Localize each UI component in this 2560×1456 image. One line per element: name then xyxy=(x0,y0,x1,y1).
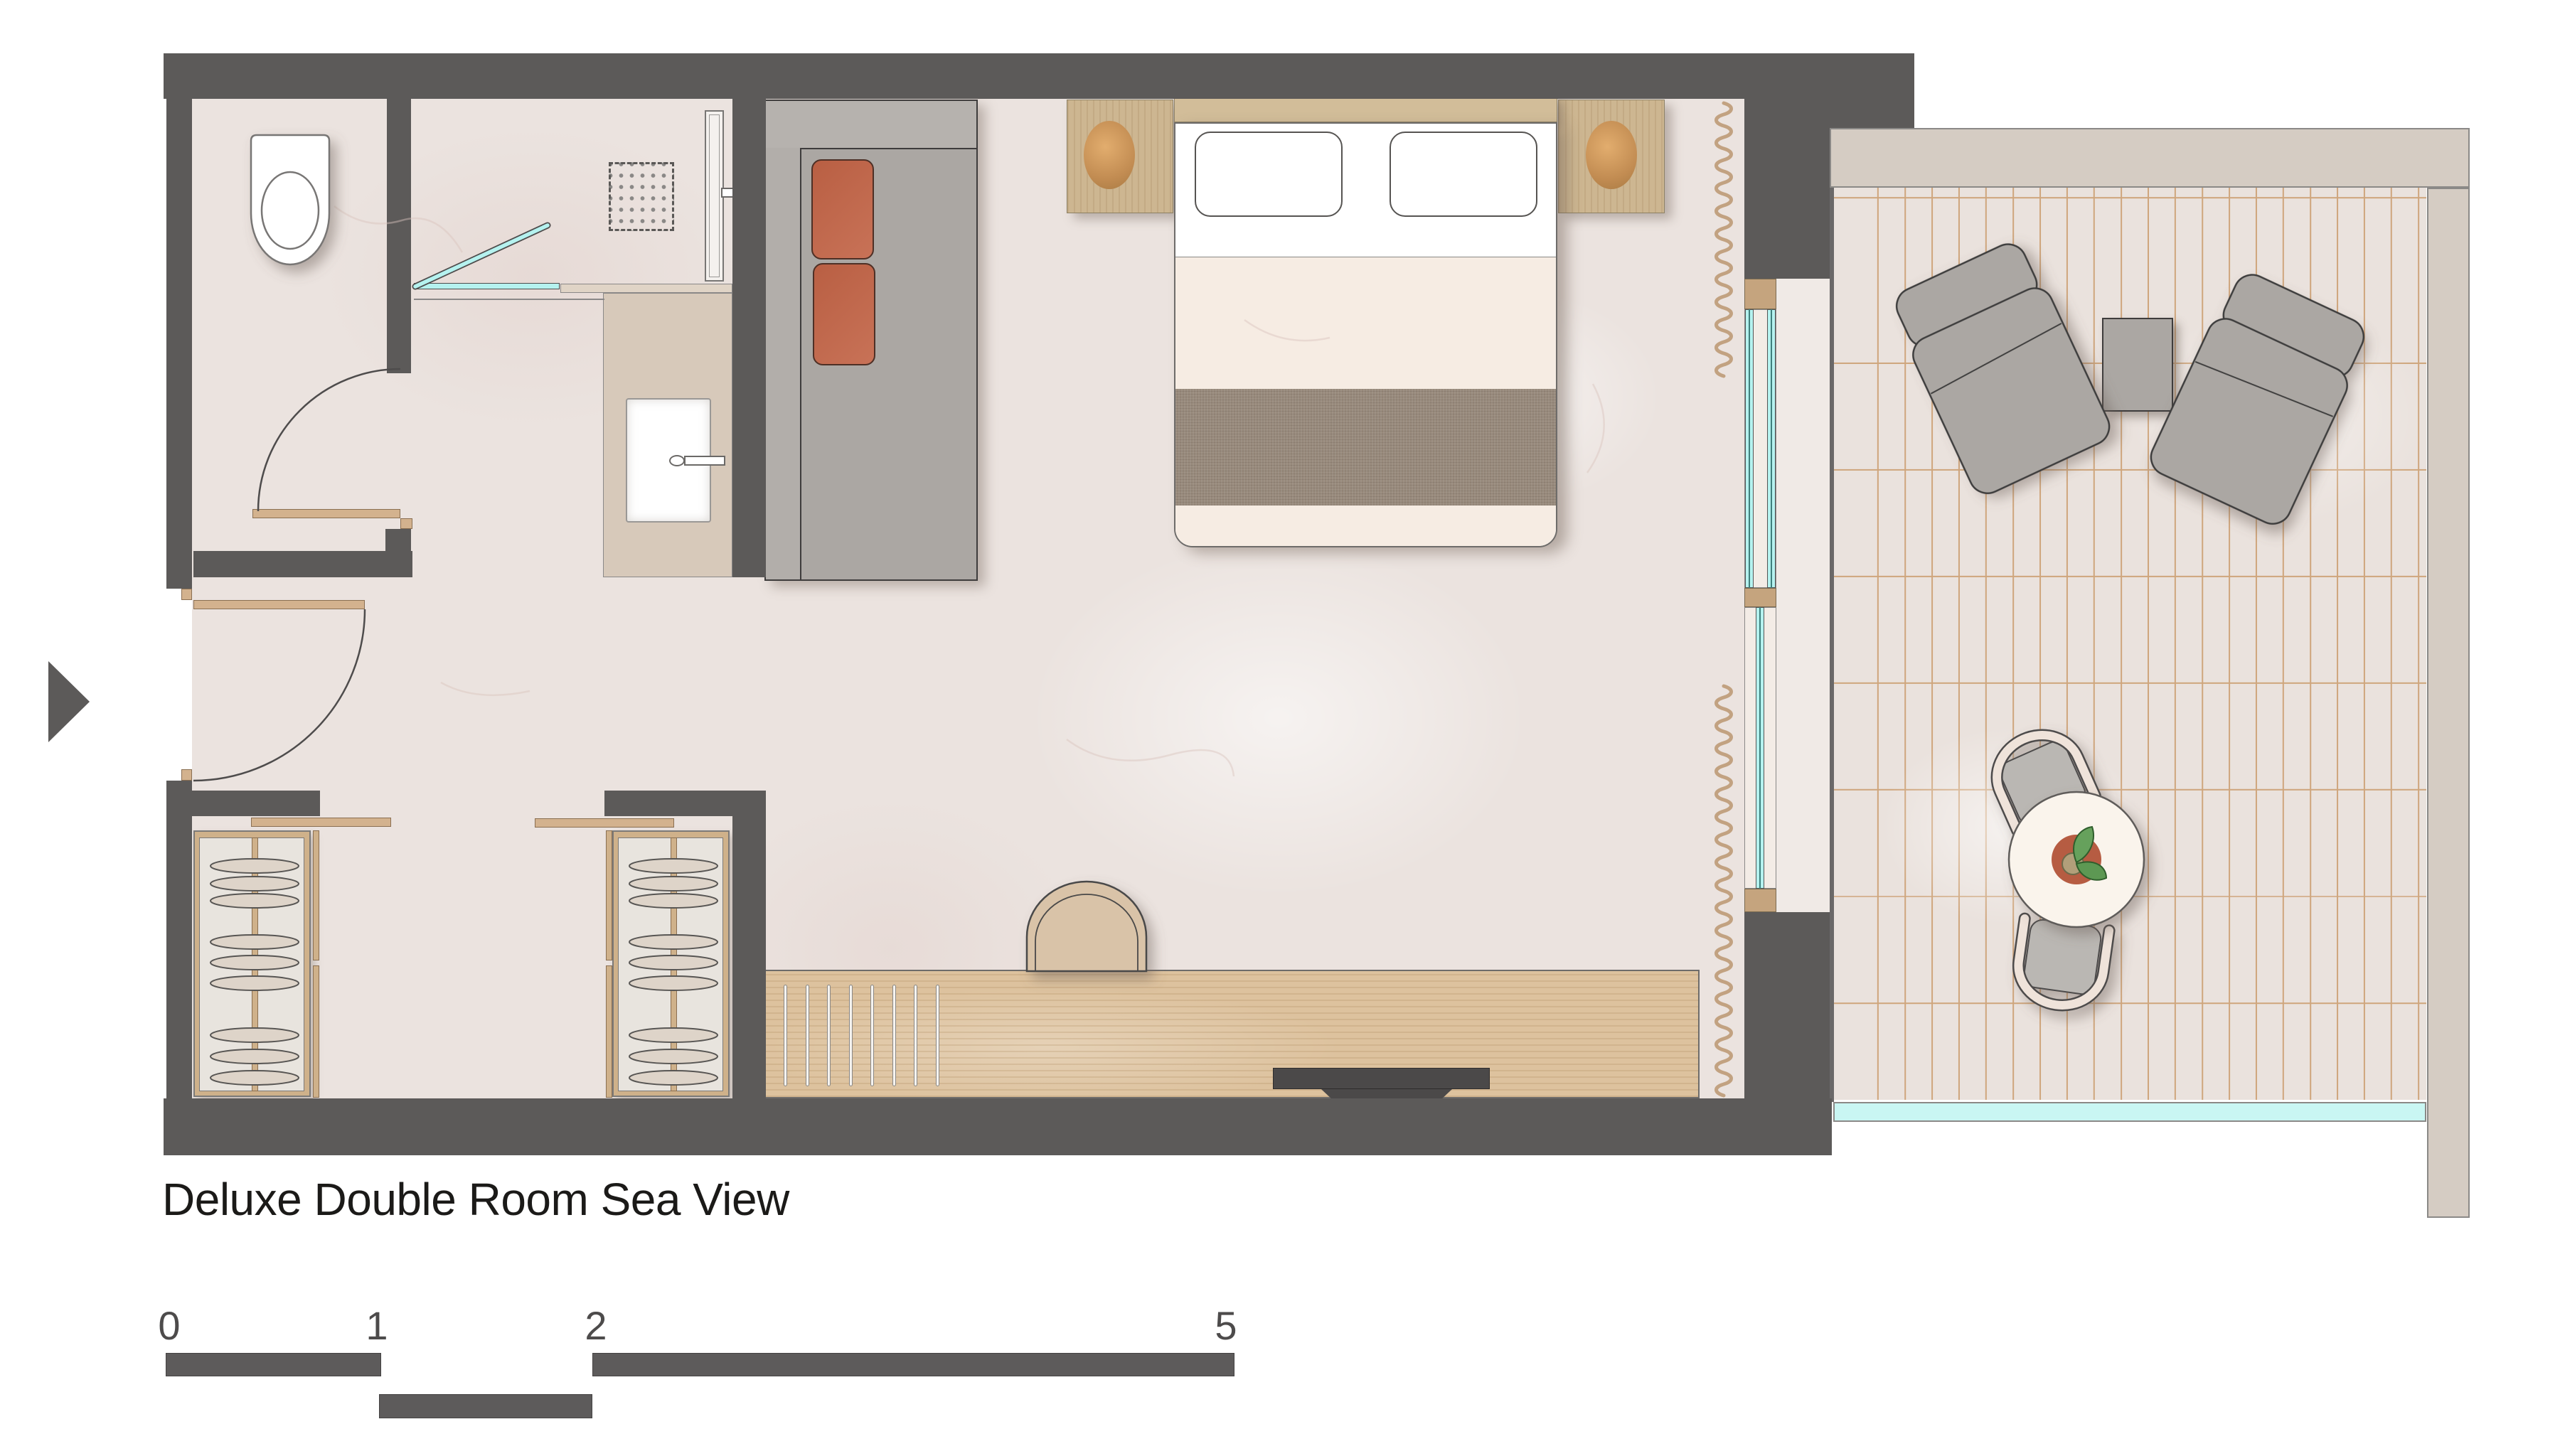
wardrobe-right-rod xyxy=(671,837,677,1091)
wall-niche-right xyxy=(732,816,766,1098)
glass-line xyxy=(1771,309,1772,588)
wall-bathroom-bottom xyxy=(193,551,412,577)
desk-slat-detail xyxy=(892,985,896,1086)
sink-faucet-knob xyxy=(669,455,685,466)
desk-slat-detail xyxy=(827,985,831,1086)
desk-slat-detail xyxy=(849,985,853,1086)
wall-stub-left xyxy=(190,791,320,816)
window-frame-top xyxy=(1744,279,1776,309)
shower-glass-fixed xyxy=(414,283,560,289)
scale-bar-segment-0-1 xyxy=(166,1353,381,1376)
wall-top-right-corner xyxy=(1744,53,1914,128)
desk-slat-detail xyxy=(806,985,809,1086)
window-frame-mid xyxy=(1744,588,1776,607)
pillow-right xyxy=(1390,132,1537,217)
sink-faucet-bar xyxy=(684,456,725,466)
scale-bar-segment-1-2 xyxy=(379,1394,592,1418)
wardrobe-left-rod xyxy=(252,837,258,1091)
window-frame-bottom xyxy=(1744,889,1776,912)
sofa-armrest xyxy=(766,101,976,149)
floor-plan: Deluxe Double Room Sea View 0 1 2 5 xyxy=(0,0,2560,1456)
lamp-left-icon xyxy=(1084,121,1135,189)
bed-blanket-bottom xyxy=(1175,505,1556,547)
desk xyxy=(763,970,1700,1098)
counter-return xyxy=(560,284,732,293)
pillow-left xyxy=(1195,132,1343,217)
desk-slat-detail xyxy=(936,985,939,1086)
wardrobe-divider xyxy=(313,965,319,1098)
wall-bathroom-bedroom xyxy=(732,53,766,577)
wall-toilet-divider xyxy=(387,97,411,373)
tv-icon xyxy=(1273,1068,1490,1089)
wall-stub-right xyxy=(604,791,766,816)
entry-threshold-top xyxy=(181,589,192,600)
lamp-right-icon xyxy=(1586,121,1637,189)
sofa-backrest xyxy=(766,148,801,579)
scale-label-5: 5 xyxy=(1215,1302,1237,1349)
sofa-cushion-2 xyxy=(813,263,875,365)
sofa xyxy=(764,100,978,581)
wall-left-upper xyxy=(166,53,192,589)
balcony-right-band xyxy=(2427,188,2470,1218)
wardrobe-divider xyxy=(606,965,612,1098)
wall-left-lower xyxy=(166,781,192,1155)
wall-top xyxy=(164,53,1744,99)
wall-window-lower xyxy=(1744,912,1830,1098)
desk-slat-detail xyxy=(914,985,917,1086)
wardrobe-divider xyxy=(313,830,319,960)
desk-slat-detail xyxy=(784,985,787,1086)
scale-label-0: 0 xyxy=(158,1302,180,1349)
window-outer-sill xyxy=(1776,279,1830,912)
entry-door-leaf xyxy=(193,600,365,609)
plan-title: Deluxe Double Room Sea View xyxy=(162,1173,789,1226)
wardrobe-shelf-left xyxy=(251,818,391,827)
wardrobe-divider xyxy=(606,830,612,960)
scale-bar-segment-2-5 xyxy=(592,1353,1234,1376)
glass-line xyxy=(1749,309,1750,588)
wall-bathroom-bottom-jog xyxy=(385,529,411,551)
balcony-top-band xyxy=(1830,128,2470,188)
balcony-glass-railing xyxy=(1833,1102,2426,1122)
wall-window-upper xyxy=(1744,128,1830,279)
shower-step-line xyxy=(414,299,604,300)
balcony-edge-line xyxy=(1830,188,1834,1102)
bathroom-door-hinge xyxy=(400,518,412,529)
wardrobe-shelf-right xyxy=(535,818,674,828)
bathroom-door-leaf xyxy=(252,509,400,518)
entry-threshold-bottom xyxy=(181,769,192,781)
shower-head-icon xyxy=(609,162,674,231)
entrance-arrow-icon xyxy=(48,661,90,742)
sofa-cushion-1 xyxy=(811,159,874,259)
bed-runner xyxy=(1175,389,1556,505)
glass-line xyxy=(1759,607,1761,889)
desk-slat-detail xyxy=(870,985,874,1086)
bed-blanket-top xyxy=(1175,257,1556,390)
wall-bottom xyxy=(164,1098,1832,1155)
scale-label-1: 1 xyxy=(366,1302,388,1349)
scale-label-2: 2 xyxy=(585,1302,607,1349)
side-table xyxy=(2102,318,2173,412)
